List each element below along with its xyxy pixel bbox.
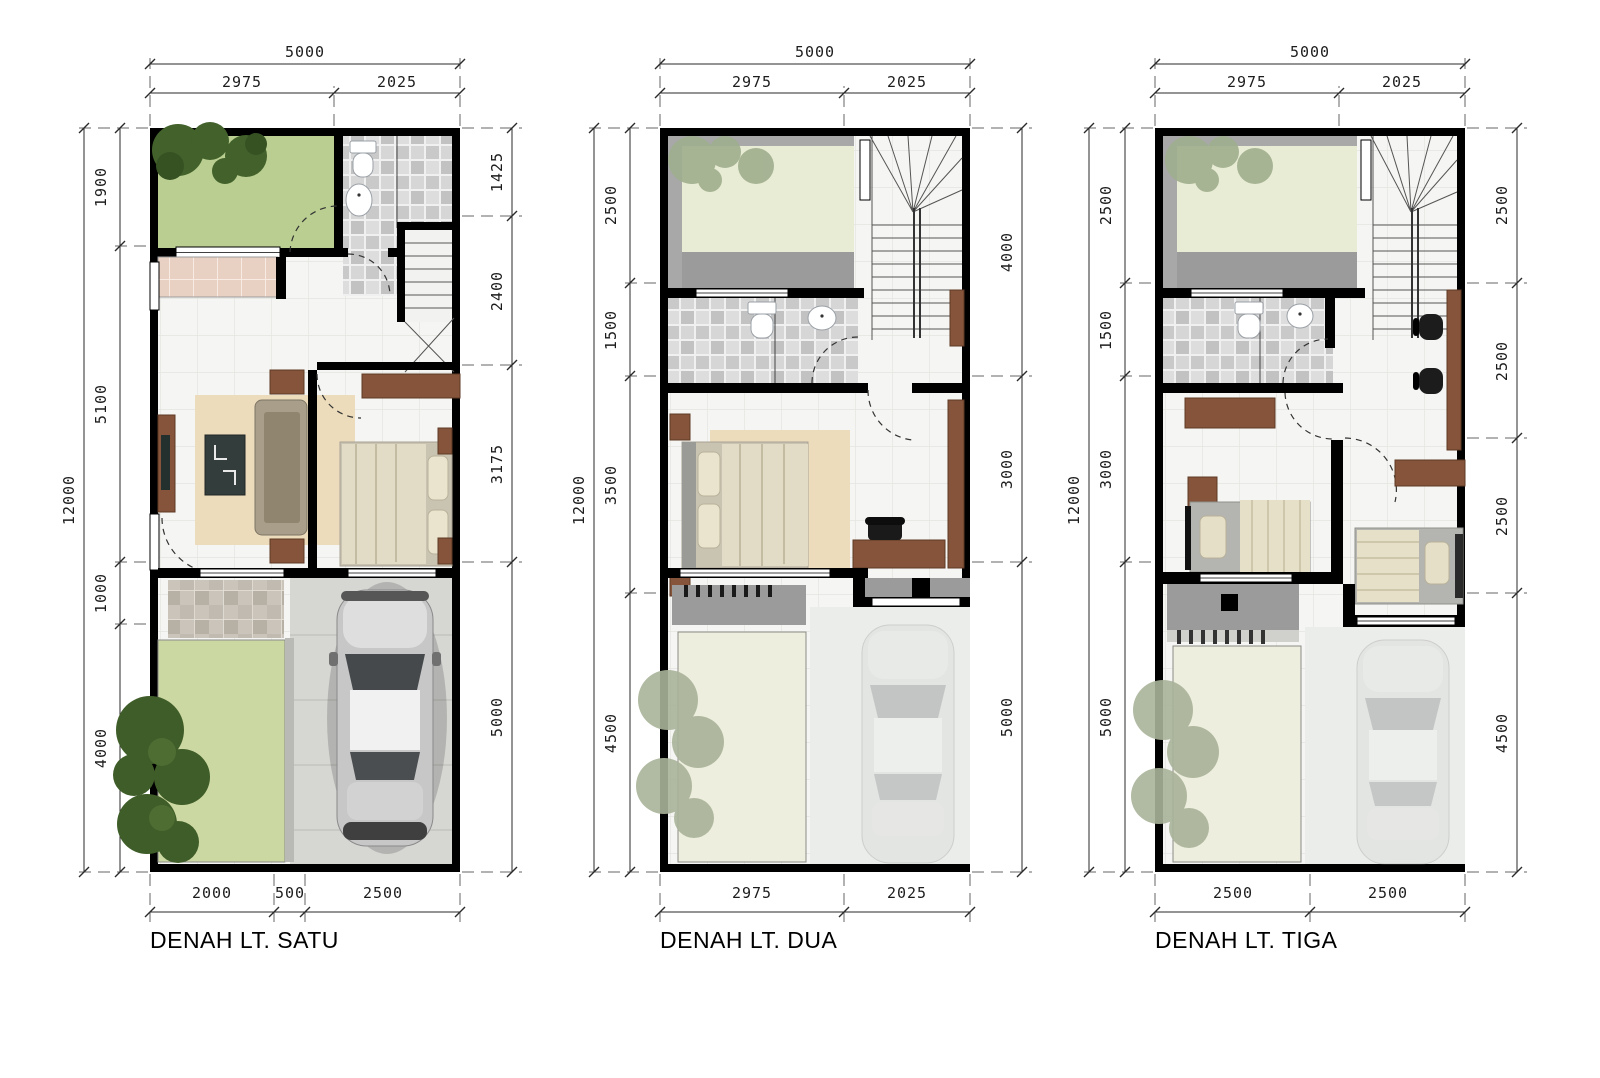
dim-bottom-1: 500 xyxy=(275,884,305,902)
plan-body xyxy=(636,128,970,872)
dimensions-top: 5000 2975 2025 xyxy=(655,43,975,126)
floor-plan-sheet: 5000 2975 2025 12000 1900 5100 1000 4000… xyxy=(0,0,1600,1078)
dim-bottom-1: 2025 xyxy=(887,884,927,902)
dim-top-left: 2975 xyxy=(1227,73,1267,91)
plan-title: DENAH LT. SATU xyxy=(150,927,339,953)
bed-icon xyxy=(682,442,808,568)
phone-icon xyxy=(865,517,905,540)
garden xyxy=(152,122,334,248)
dim-right-1: 2400 xyxy=(488,271,506,311)
sink-icon xyxy=(346,184,372,216)
dim-left-2: 3000 xyxy=(1097,449,1115,489)
garden-wall xyxy=(668,288,864,298)
nightstand xyxy=(438,428,452,454)
dim-right-1: 3000 xyxy=(998,449,1016,489)
car-icon xyxy=(862,625,954,863)
balcony xyxy=(1167,584,1299,644)
toilet-icon xyxy=(350,141,376,177)
plan-title: DENAH LT. DUA xyxy=(660,927,837,953)
car-icon xyxy=(1357,640,1449,864)
bathroom xyxy=(668,298,858,383)
roof-garden xyxy=(1163,136,1357,288)
dim-left-0: 2500 xyxy=(602,185,620,225)
dim-top-total: 5000 xyxy=(1290,43,1330,61)
dim-side-total: 12000 xyxy=(60,475,78,525)
dim-left-3: 4500 xyxy=(602,713,620,753)
garden-wall xyxy=(1163,288,1365,298)
wardrobe xyxy=(1185,398,1275,428)
dim-side-total: 12000 xyxy=(1065,475,1083,525)
dim-right-0: 1425 xyxy=(488,152,506,192)
dim-right-3: 5000 xyxy=(488,697,506,737)
dim-left-3: 5000 xyxy=(1097,697,1115,737)
sink-icon xyxy=(1287,304,1313,328)
dim-left-3: 4000 xyxy=(92,728,110,768)
garden-bath-wall xyxy=(334,136,343,254)
dim-top-left: 2975 xyxy=(222,73,262,91)
dim-right-1: 2500 xyxy=(1493,341,1511,381)
roof-garden xyxy=(668,136,854,288)
coffee-table-icon xyxy=(205,435,245,495)
plan-body xyxy=(1131,128,1465,872)
dim-right-2: 2500 xyxy=(1493,496,1511,536)
dim-left-0: 1900 xyxy=(92,167,110,207)
dimensions-right: 1425 2400 3175 5000 xyxy=(462,123,522,877)
desk xyxy=(1447,290,1461,450)
dim-bottom-0: 2500 xyxy=(1213,884,1253,902)
dim-bottom-0: 2975 xyxy=(732,884,772,902)
mid-wall xyxy=(158,568,452,578)
side-table xyxy=(270,539,304,563)
dim-top-right: 2025 xyxy=(377,73,417,91)
dimensions-right: 4000 3000 5000 xyxy=(972,123,1032,877)
bath-wall xyxy=(1163,383,1343,393)
dim-right-2: 5000 xyxy=(998,697,1016,737)
dim-left-0: 2500 xyxy=(1097,185,1115,225)
dim-bottom-1: 2500 xyxy=(1368,884,1408,902)
ground-floor-ghost xyxy=(636,607,970,864)
dimensions-bottom: 2975 2025 xyxy=(655,874,975,922)
plan-title: DENAH LT. TIGA xyxy=(1155,927,1338,953)
dim-left-1: 1500 xyxy=(602,310,620,350)
dim-right-0: 4000 xyxy=(998,232,1016,272)
dim-bottom-2: 2500 xyxy=(363,884,403,902)
dimensions-left: 12000 2500 1500 3500 4500 xyxy=(570,123,658,877)
cabinet xyxy=(950,290,964,346)
hall-wall xyxy=(912,383,970,393)
nightstand xyxy=(438,538,452,564)
bath-wall xyxy=(668,383,868,393)
dimensions-left: 12000 2500 1500 3000 5000 xyxy=(1065,123,1153,877)
bed-icon xyxy=(1185,500,1310,572)
toilet-icon xyxy=(748,302,776,338)
bed-icon xyxy=(340,442,452,566)
dim-top-right: 2025 xyxy=(1382,73,1422,91)
dimensions-bottom: 2000 500 2500 xyxy=(145,874,465,922)
floor-plan-3: 5000 2975 2025 12000 2500 1500 3000 5000… xyxy=(1055,40,1575,1030)
dim-left-1: 1500 xyxy=(1097,310,1115,350)
dimensions-right: 2500 2500 2500 4500 xyxy=(1467,123,1527,877)
sink-icon xyxy=(808,306,836,330)
dim-left-2: 1000 xyxy=(92,573,110,613)
side-table xyxy=(270,370,304,394)
wardrobe xyxy=(948,400,964,568)
nightstand xyxy=(670,414,690,440)
dim-right-3: 4500 xyxy=(1493,713,1511,753)
ground-floor-ghost xyxy=(1131,627,1465,864)
dim-top-right: 2025 xyxy=(887,73,927,91)
dim-right-0: 2500 xyxy=(1493,185,1511,225)
porch-tiles xyxy=(168,580,284,638)
dimensions-bottom: 2500 2500 xyxy=(1150,874,1470,922)
dimensions-top: 5000 2975 2025 xyxy=(1150,43,1470,126)
dim-top-total: 5000 xyxy=(795,43,835,61)
dim-right-2: 3175 xyxy=(488,444,506,484)
divider-wall xyxy=(1331,440,1343,584)
dim-top-left: 2975 xyxy=(732,73,772,91)
dim-side-total: 12000 xyxy=(570,475,588,525)
bathroom xyxy=(1163,298,1335,383)
dim-bottom-0: 2000 xyxy=(192,884,232,902)
shelf xyxy=(1395,460,1465,486)
dim-left-2: 3500 xyxy=(602,465,620,505)
car-icon xyxy=(327,582,447,854)
dimensions-top: 5000 2975 2025 xyxy=(145,43,465,126)
dim-top-total: 5000 xyxy=(285,43,325,61)
dim-left-1: 5100 xyxy=(92,384,110,424)
toilet-icon xyxy=(1235,302,1263,338)
plan-body xyxy=(113,122,460,872)
floor-plan-1: 5000 2975 2025 12000 1900 5100 1000 4000… xyxy=(50,40,570,1030)
floor-plan-2: 5000 2975 2025 12000 2500 1500 3500 4500… xyxy=(560,40,1080,1030)
sofa-icon xyxy=(255,400,307,535)
headboard-shelf xyxy=(362,374,460,398)
bed-icon xyxy=(1355,528,1463,604)
